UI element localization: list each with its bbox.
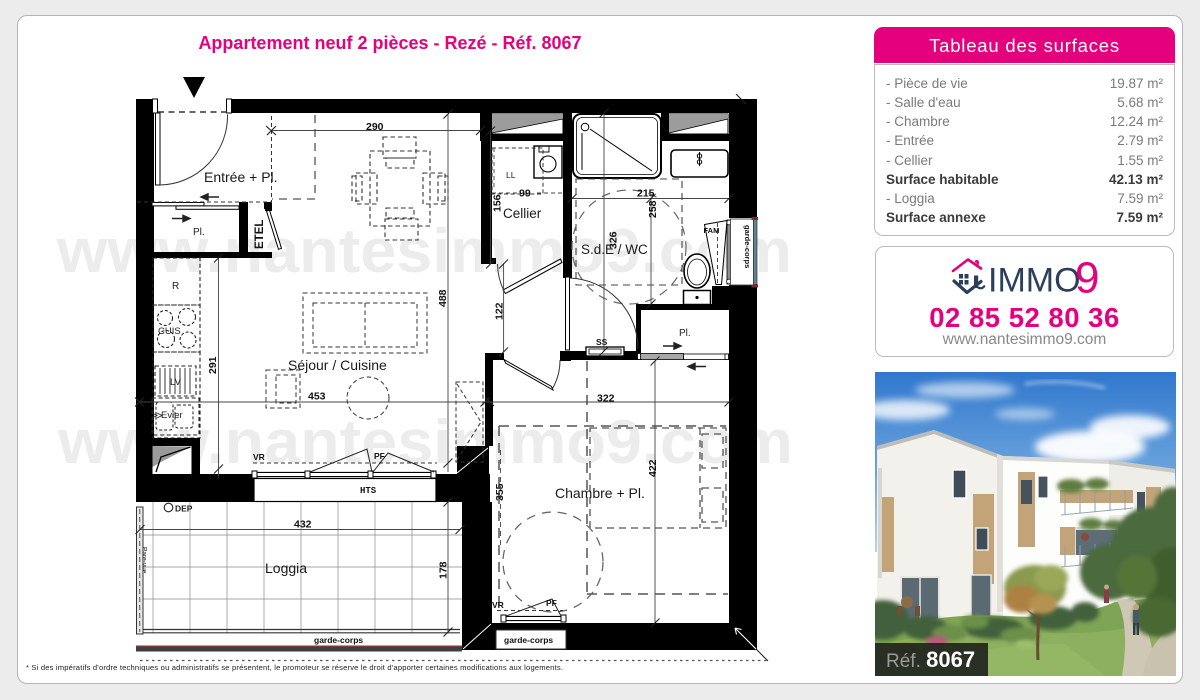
svg-text:326: 326 [608, 231, 620, 249]
svg-text:432: 432 [294, 519, 312, 531]
svg-text:Evier: Evier [161, 410, 183, 421]
svg-text:IMMO: IMMO [988, 262, 1081, 300]
svg-text:Entrée + Pl.: Entrée + Pl. [204, 169, 278, 185]
svg-text:FAM: FAM [704, 226, 720, 235]
svg-text:99: 99 [519, 188, 531, 200]
svg-text:422: 422 [647, 459, 659, 477]
svg-text:HTS: HTS [360, 486, 377, 496]
svg-text:www.nantesimmo9.com: www.nantesimmo9.com [56, 217, 792, 286]
svg-text:355: 355 [494, 483, 506, 501]
svg-text:PF: PF [546, 598, 557, 608]
svg-text:Cellier: Cellier [503, 206, 542, 221]
svg-text:Pl.: Pl. [193, 227, 205, 238]
svg-text:R: R [172, 281, 179, 292]
svg-text:Chambre + Pl.: Chambre + Pl. [555, 485, 645, 501]
svg-text:Pl.: Pl. [679, 328, 691, 339]
svg-text:215: 215 [637, 188, 655, 200]
svg-text:156: 156 [492, 194, 504, 212]
svg-text:178: 178 [438, 561, 450, 579]
svg-text:CUIS: CUIS [158, 326, 181, 337]
svg-text:garde-corps: garde-corps [743, 225, 752, 268]
svg-text:Loggia: Loggia [265, 560, 307, 576]
svg-text:122: 122 [494, 302, 506, 320]
svg-text:9: 9 [1075, 254, 1099, 303]
svg-text:258: 258 [647, 200, 659, 218]
svg-text:290: 290 [366, 121, 384, 133]
svg-text:DEP: DEP [175, 504, 193, 514]
svg-text:VR: VR [492, 600, 504, 610]
svg-text:garde-corps: garde-corps [504, 635, 553, 645]
svg-text:PF: PF [374, 451, 385, 461]
svg-text:garde-corps: garde-corps [314, 635, 363, 645]
svg-text:LV: LV [170, 377, 182, 388]
svg-text:322: 322 [597, 393, 615, 405]
svg-text:291: 291 [207, 356, 219, 374]
svg-text:Séjour / Cuisine: Séjour / Cuisine [288, 357, 387, 373]
svg-text:VR: VR [253, 452, 265, 462]
svg-text:488: 488 [437, 289, 449, 307]
svg-text:Pare-vue: Pare-vue [141, 547, 148, 574]
svg-text:453: 453 [308, 391, 326, 403]
svg-text:ETEL: ETEL [254, 220, 266, 249]
svg-text:SS: SS [596, 337, 608, 347]
svg-text:LL: LL [506, 170, 516, 180]
